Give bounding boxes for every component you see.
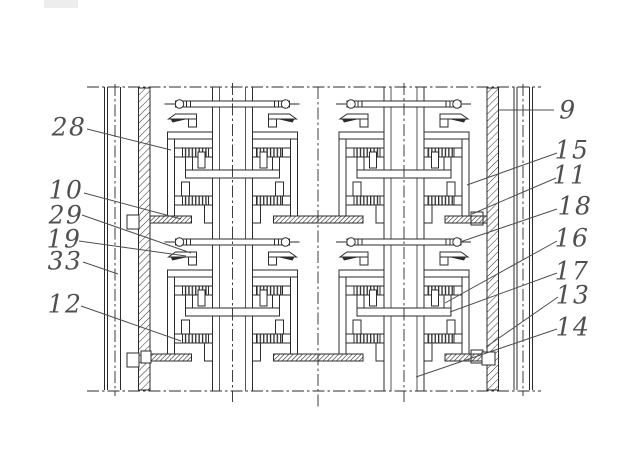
ref-label-33: 33 [48,249,83,274]
leader-19 [79,241,186,256]
ref-label-28: 28 [52,115,87,140]
vessel-wall-left [139,88,151,390]
tray-upper [127,212,487,229]
ref-label-18: 18 [558,194,593,219]
tray-bracket [127,215,139,229]
ref-label-15: 15 [555,138,590,163]
outer-shell-left [105,84,121,396]
leader-12 [81,306,181,341]
leader-15 [467,153,557,185]
sectional-drawing [0,0,640,459]
patent-figure: 28 10 29 19 33 12 9 15 11 18 16 17 13 14 [0,0,640,459]
leader-28 [87,129,171,150]
outer-shell-right [514,84,533,396]
ref-label-9: 9 [559,98,576,123]
ref-label-14: 14 [556,315,591,340]
ref-label-11: 11 [553,163,588,188]
ref-label-10: 10 [49,178,84,203]
leader-lines [79,110,558,377]
tray-lower [127,350,495,367]
tray-bracket [127,353,139,367]
leader-33 [83,262,118,274]
ref-label-13: 13 [556,283,591,308]
wall-flange [141,351,151,363]
ref-label-16: 16 [555,226,590,251]
ref-label-12: 12 [48,292,83,317]
